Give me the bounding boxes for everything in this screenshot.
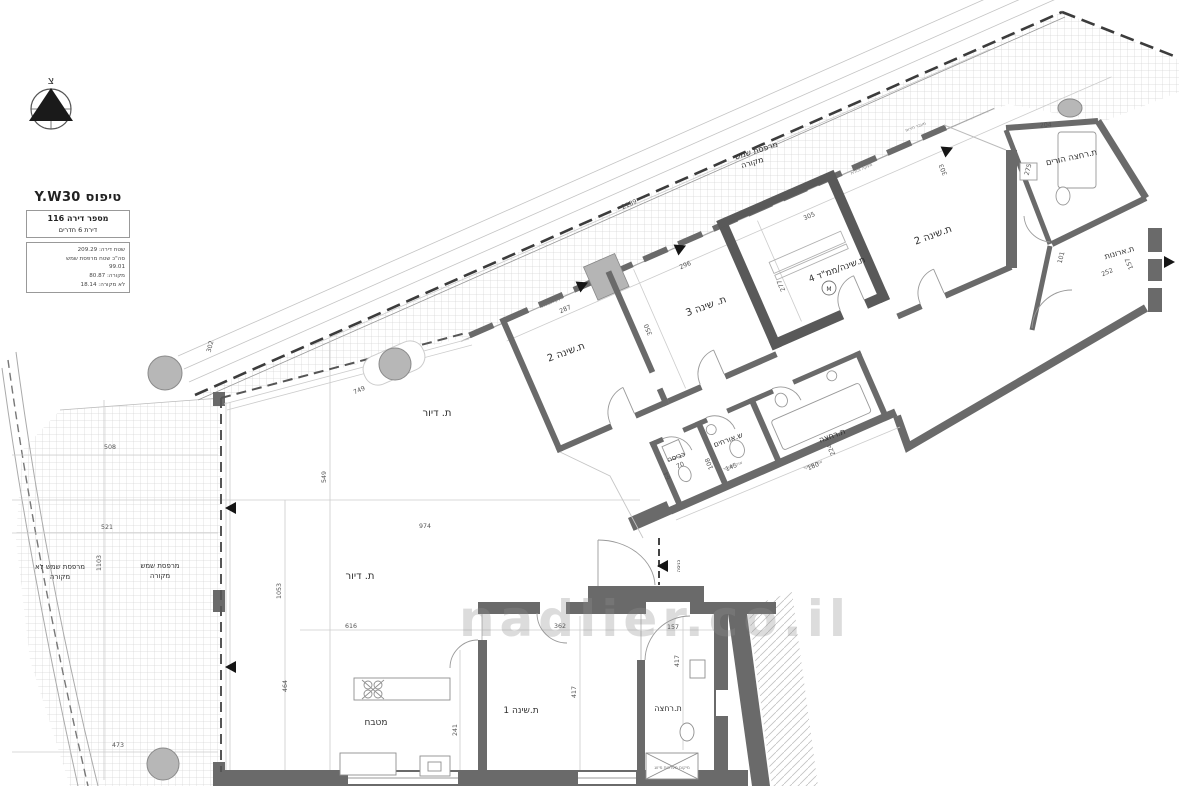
room-label: מרפסת שמש לא <box>35 563 85 571</box>
dim: 145 <box>724 462 738 473</box>
area-line: 99.01 <box>31 263 125 272</box>
dim: 749 <box>352 385 366 396</box>
room-label: ת.שינה 2 <box>546 341 587 365</box>
dim: 464 <box>282 680 289 692</box>
dim: 521 <box>101 524 113 531</box>
room-label: ת.שינה 2 <box>913 224 954 248</box>
room-label: ת. דיור <box>423 408 452 419</box>
room-label: ת. דיור <box>346 571 375 582</box>
dim: 417 <box>571 686 578 698</box>
bottom-bath-fixtures <box>646 660 705 779</box>
apartment-number: מספר דירה 116 <box>29 214 127 223</box>
dim: 974 <box>419 523 431 530</box>
dim: 508 <box>104 444 116 451</box>
dim: 101 <box>1057 251 1067 264</box>
entrance-label: כניסה <box>676 560 682 573</box>
dim: 296 <box>678 260 692 271</box>
floor-plan-drawing: צ nadlier.co.il מרפסת שמש מקורה ת.שינה 2… <box>0 0 1179 786</box>
dim: 350 <box>643 323 654 337</box>
kitchen-fixtures <box>340 678 450 776</box>
ac-note: מיקום מערכות מיזוג <box>654 765 690 770</box>
room-label: ת. שינה 3 <box>684 294 728 319</box>
dim: 302 <box>206 340 216 353</box>
watermark: nadlier.co.il <box>459 590 851 648</box>
lower-section-walls <box>213 333 776 786</box>
arrow-icon <box>941 142 956 157</box>
dim: 473 <box>112 742 124 749</box>
dim: 1103 <box>96 555 103 571</box>
room-label: ת.שינה 1 <box>503 706 538 716</box>
room-label: ת.רחצה <box>654 704 682 713</box>
dim: 417 <box>674 655 681 667</box>
parents-bath-walls <box>944 121 1146 330</box>
area-line: סה"כ שטח מרפסת שמש <box>31 255 125 264</box>
bedroom2tr-right-wall <box>1006 150 1017 268</box>
room-label: מקורה <box>50 573 70 581</box>
mamad-marker-letter: M <box>826 286 831 293</box>
room-label: ת.שינה/ממ"ד 4 <box>808 255 867 285</box>
apartment-rooms: דירת 6 חדרים <box>29 226 127 234</box>
area-line: שטח דירה: 209.29 <box>31 246 125 255</box>
dim: 1053 <box>276 583 283 599</box>
dim: 616 <box>345 623 357 630</box>
arrow-icon <box>225 661 236 673</box>
area-info-box: שטח דירה: 209.29 סה"כ שטח מרפסת שמש 99.0… <box>26 242 130 293</box>
dim: 252 <box>1100 267 1114 278</box>
floor-plan-page: צ nadlier.co.il מרפסת שמש מקורה ת.שינה 2… <box>0 0 1179 786</box>
area-line: מקורה: 80.87 <box>31 272 125 281</box>
arrow-icon <box>225 502 236 514</box>
room-label: מקורה <box>150 572 170 580</box>
room-label: מרפסת שמש <box>140 562 179 570</box>
covered-balcony-top <box>195 12 1179 398</box>
dim: 305 <box>802 211 816 222</box>
dim: 157 <box>1124 257 1135 271</box>
columns <box>147 99 1082 780</box>
north-compass-icon: צ <box>29 74 73 129</box>
north-label: צ <box>48 74 55 87</box>
dim: 224 <box>826 443 837 457</box>
dim: 303 <box>938 163 949 177</box>
plan-type-title: טיפוס Y.W30 <box>26 190 130 205</box>
room-label: מטבח <box>364 718 387 728</box>
mamad-marker: M <box>822 281 836 295</box>
area-line: לא מקורה: 18.14 <box>31 281 125 290</box>
dim: 549 <box>321 471 328 483</box>
dim: 204 <box>1040 121 1053 129</box>
dim: 241 <box>452 724 459 736</box>
arrow-icon <box>1164 256 1175 268</box>
apartment-info-box: מספר דירה 116 דירת 6 חדרים <box>26 210 130 238</box>
dim: 362 <box>554 623 566 630</box>
dim: 157 <box>667 624 679 631</box>
title-block: טיפוס Y.W30 מספר דירה 116 דירת 6 חדרים ש… <box>26 190 130 293</box>
